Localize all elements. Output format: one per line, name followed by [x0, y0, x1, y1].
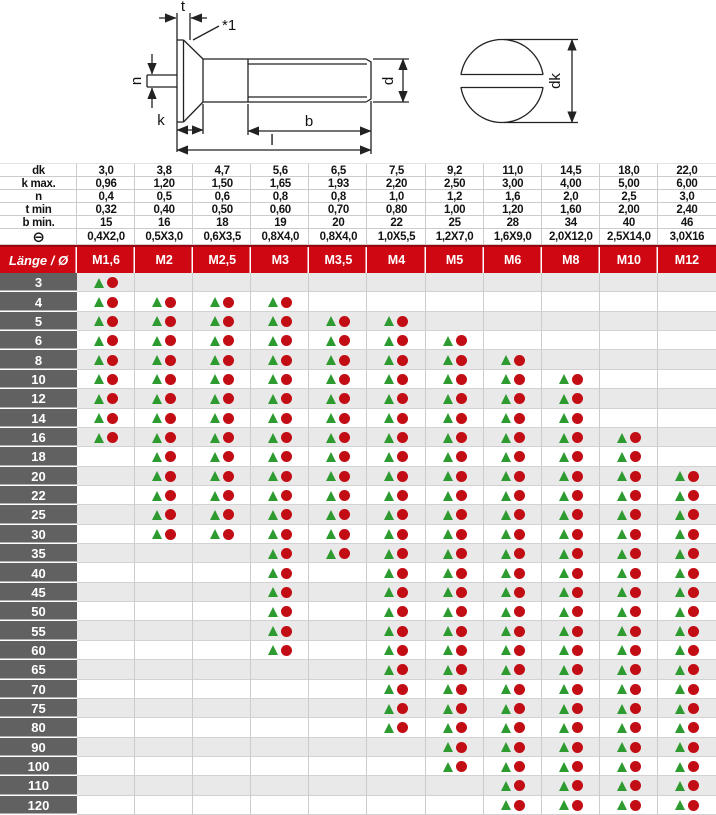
availability-cell — [77, 312, 135, 331]
spec-value: 40 — [600, 216, 658, 229]
availability-markers — [443, 393, 467, 404]
availability-markers — [152, 393, 176, 404]
availability-markers — [443, 684, 467, 695]
availability-markers — [559, 684, 583, 695]
availability-cell — [135, 292, 193, 311]
availability-cell — [77, 292, 135, 311]
triangle-icon — [210, 433, 220, 443]
availability-cell — [600, 312, 658, 331]
triangle-icon — [501, 568, 511, 578]
spec-value: 11,0 — [484, 164, 542, 177]
availability-cell — [251, 776, 309, 795]
triangle-icon — [384, 471, 394, 481]
spec-value: 3,0 — [658, 190, 716, 203]
availability-markers — [675, 761, 699, 772]
availability-cell — [426, 312, 484, 331]
table-row: 4 — [0, 292, 716, 311]
availability-markers — [210, 490, 234, 501]
circle-icon — [397, 664, 408, 675]
circle-icon — [165, 451, 176, 462]
availability-cell — [542, 641, 600, 660]
availability-markers — [559, 780, 583, 791]
availability-cell — [542, 718, 600, 737]
availability-cell — [658, 312, 716, 331]
triangle-icon — [152, 471, 162, 481]
availability-cell — [367, 409, 425, 428]
circle-icon — [572, 413, 583, 424]
triangle-icon — [210, 491, 220, 501]
triangle-icon — [559, 433, 569, 443]
availability-markers — [210, 509, 234, 520]
triangle-icon — [268, 471, 278, 481]
circle-icon — [688, 587, 699, 598]
availability-cell — [77, 525, 135, 544]
availability-markers — [443, 451, 467, 462]
circle-icon — [281, 529, 292, 540]
availability-cell — [426, 389, 484, 408]
circle-icon — [572, 490, 583, 501]
circle-icon — [514, 626, 525, 637]
circle-icon — [456, 432, 467, 443]
table-row: 22 — [0, 486, 716, 505]
triangle-icon — [152, 297, 162, 307]
length-label: 80 — [0, 718, 77, 737]
length-label: 4 — [0, 292, 77, 311]
availability-cell — [484, 273, 542, 292]
availability-cell — [251, 699, 309, 718]
availability-markers — [675, 800, 699, 811]
availability-cell — [77, 486, 135, 505]
availability-cell — [135, 389, 193, 408]
circle-icon — [572, 761, 583, 772]
circle-icon — [281, 548, 292, 559]
triangle-icon — [675, 781, 685, 791]
triangle-icon — [384, 626, 394, 636]
triangle-icon — [559, 394, 569, 404]
availability-markers — [326, 529, 350, 540]
circle-icon — [630, 432, 641, 443]
availability-markers — [501, 451, 525, 462]
availability-cell — [542, 699, 600, 718]
circle-icon — [514, 529, 525, 540]
availability-markers — [501, 626, 525, 637]
circle-icon — [630, 587, 641, 598]
circle-icon — [339, 451, 350, 462]
circle-icon — [572, 374, 583, 385]
availability-cell — [367, 273, 425, 292]
availability-markers — [501, 761, 525, 772]
circle-icon — [514, 568, 525, 579]
availability-markers — [268, 432, 292, 443]
spec-value: 5,00 — [600, 177, 658, 190]
availability-cell — [193, 583, 251, 602]
circle-icon — [281, 509, 292, 520]
triangle-icon — [559, 781, 569, 791]
circle-icon — [630, 722, 641, 733]
size-column-header: M8 — [542, 247, 600, 273]
availability-cell — [135, 428, 193, 447]
circle-icon — [456, 722, 467, 733]
availability-cell — [77, 273, 135, 292]
availability-cell — [367, 699, 425, 718]
availability-cell — [484, 757, 542, 776]
availability-markers — [617, 432, 641, 443]
triangle-icon — [326, 510, 336, 520]
availability-cell — [484, 776, 542, 795]
circle-icon — [572, 800, 583, 811]
triangle-icon — [443, 413, 453, 423]
triangle-icon — [326, 413, 336, 423]
availability-cell — [251, 409, 309, 428]
triangle-icon — [675, 568, 685, 578]
circle-icon — [572, 664, 583, 675]
spec-row-label: dk — [0, 164, 77, 177]
availability-markers — [443, 335, 467, 346]
triangle-icon — [443, 742, 453, 752]
availability-cell — [484, 389, 542, 408]
length-label: 18 — [0, 447, 77, 466]
availability-cell — [193, 331, 251, 350]
availability-cell — [367, 583, 425, 602]
availability-cell — [484, 486, 542, 505]
table-row: 110 — [0, 776, 716, 795]
availability-cell — [367, 602, 425, 621]
spec-row-label: k max. — [0, 177, 77, 190]
circle-icon — [572, 471, 583, 482]
spec-value: 20 — [309, 216, 367, 229]
availability-cell — [542, 409, 600, 428]
triangle-icon — [501, 471, 511, 481]
availability-cell — [542, 776, 600, 795]
triangle-icon — [384, 413, 394, 423]
circle-icon — [456, 742, 467, 753]
availability-markers — [675, 645, 699, 656]
availability-cell — [193, 641, 251, 660]
availability-cell — [600, 680, 658, 699]
circle-icon — [572, 780, 583, 791]
circle-icon — [688, 703, 699, 714]
table-row: 20 — [0, 467, 716, 486]
circle-icon — [688, 471, 699, 482]
availability-cell — [600, 350, 658, 369]
triangle-icon — [559, 568, 569, 578]
circle-icon — [397, 393, 408, 404]
triangle-icon — [384, 510, 394, 520]
availability-markers — [443, 761, 467, 772]
availability-markers — [559, 548, 583, 559]
availability-markers — [384, 587, 408, 598]
availability-cell — [542, 505, 600, 524]
circle-icon — [397, 413, 408, 424]
availability-markers — [94, 432, 118, 443]
dim-label-k: k — [157, 112, 165, 129]
availability-markers — [210, 374, 234, 385]
triangle-icon — [210, 374, 220, 384]
availability-markers — [94, 297, 118, 308]
circle-icon — [397, 703, 408, 714]
availability-cell — [77, 776, 135, 795]
availability-markers — [94, 393, 118, 404]
circle-icon — [630, 664, 641, 675]
circle-icon — [281, 626, 292, 637]
availability-markers — [617, 568, 641, 579]
triangle-icon — [268, 452, 278, 462]
availability-markers — [210, 297, 234, 308]
availability-markers — [443, 548, 467, 559]
availability-markers — [559, 761, 583, 772]
triangle-icon — [617, 510, 627, 520]
availability-cell — [484, 602, 542, 621]
availability-cell — [600, 331, 658, 350]
availability-markers — [268, 606, 292, 617]
triangle-icon — [384, 684, 394, 694]
availability-markers — [443, 529, 467, 540]
availability-markers — [501, 722, 525, 733]
size-column-header: M12 — [658, 247, 716, 273]
availability-cell — [600, 563, 658, 582]
availability-cell — [251, 505, 309, 524]
availability-cell — [193, 292, 251, 311]
circle-icon — [397, 645, 408, 656]
availability-markers — [268, 548, 292, 559]
availability-cell — [600, 641, 658, 660]
availability-markers — [384, 645, 408, 656]
triangle-icon — [268, 491, 278, 501]
circle-icon — [630, 490, 641, 501]
dim-label-t: t — [181, 0, 186, 15]
circle-icon — [688, 529, 699, 540]
triangle-icon — [384, 607, 394, 617]
circle-icon — [397, 568, 408, 579]
triangle-icon — [501, 645, 511, 655]
availability-markers — [94, 316, 118, 327]
availability-markers — [559, 413, 583, 424]
triangle-icon — [210, 452, 220, 462]
availability-cell — [484, 660, 542, 679]
triangle-icon — [384, 355, 394, 365]
size-column-header: M3 — [251, 247, 309, 273]
availability-cell — [135, 350, 193, 369]
triangle-icon — [326, 452, 336, 462]
availability-cell — [542, 738, 600, 757]
availability-cell — [251, 467, 309, 486]
availability-cell — [367, 718, 425, 737]
availability-cell — [309, 602, 367, 621]
circle-icon — [339, 374, 350, 385]
spec-value: 22,0 — [658, 164, 716, 177]
availability-cell — [658, 796, 716, 815]
availability-cell — [135, 757, 193, 776]
circle-icon — [572, 703, 583, 714]
availability-markers — [501, 471, 525, 482]
circle-icon — [688, 722, 699, 733]
availability-cell — [193, 467, 251, 486]
availability-cell — [426, 370, 484, 389]
circle-icon — [514, 761, 525, 772]
availability-cell — [251, 273, 309, 292]
spec-value: 1,60 — [542, 203, 600, 216]
circle-icon — [397, 626, 408, 637]
availability-cell — [658, 350, 716, 369]
triangle-icon — [443, 529, 453, 539]
availability-markers — [384, 568, 408, 579]
availability-cell — [251, 660, 309, 679]
availability-cell — [251, 621, 309, 640]
availability-cell — [309, 273, 367, 292]
triangle-icon — [210, 297, 220, 307]
triangle-icon — [559, 704, 569, 714]
availability-cell — [484, 312, 542, 331]
triangle-icon — [617, 781, 627, 791]
availability-markers — [617, 761, 641, 772]
triangle-icon — [617, 742, 627, 752]
triangle-icon — [559, 607, 569, 617]
availability-cell — [251, 738, 309, 757]
length-label: 65 — [0, 660, 77, 679]
length-label: 100 — [0, 757, 77, 776]
triangle-icon — [501, 723, 511, 733]
availability-cell — [426, 583, 484, 602]
circle-icon — [630, 451, 641, 462]
circle-icon — [572, 626, 583, 637]
spec-value: 1,0 — [367, 190, 425, 203]
availability-markers — [268, 451, 292, 462]
spec-value: 16 — [135, 216, 193, 229]
availability-markers — [617, 587, 641, 598]
triangle-icon — [559, 742, 569, 752]
triangle-icon — [617, 433, 627, 443]
availability-cell — [600, 583, 658, 602]
availability-cell — [367, 738, 425, 757]
table-row: 45 — [0, 583, 716, 602]
circle-icon — [223, 413, 234, 424]
circle-icon — [339, 355, 350, 366]
triangle-icon — [675, 491, 685, 501]
availability-markers — [559, 626, 583, 637]
triangle-icon — [94, 433, 104, 443]
availability-markers — [501, 393, 525, 404]
availability-cell — [309, 447, 367, 466]
availability-markers — [384, 606, 408, 617]
circle-icon — [107, 316, 118, 327]
availability-cell — [600, 525, 658, 544]
availability-cell — [193, 718, 251, 737]
availability-cell — [542, 757, 600, 776]
availability-cell — [135, 370, 193, 389]
spec-value: 18,0 — [600, 164, 658, 177]
availability-cell — [658, 331, 716, 350]
availability-cell — [251, 525, 309, 544]
circle-icon — [688, 742, 699, 753]
triangle-icon — [559, 491, 569, 501]
spec-row: t min0,320,400,500,600,700,801,001,201,6… — [0, 203, 716, 216]
availability-cell — [658, 389, 716, 408]
availability-cell — [600, 602, 658, 621]
triangle-icon — [152, 529, 162, 539]
table-row: 25 — [0, 505, 716, 524]
availability-cell — [484, 409, 542, 428]
availability-markers — [384, 413, 408, 424]
availability-markers — [501, 684, 525, 695]
table-row: 5 — [0, 312, 716, 331]
spec-value: 18 — [193, 216, 251, 229]
availability-markers — [384, 451, 408, 462]
triangle-icon — [443, 645, 453, 655]
triangle-icon — [617, 529, 627, 539]
availability-markers — [326, 432, 350, 443]
availability-cell — [193, 757, 251, 776]
availability-cell — [251, 447, 309, 466]
circle-icon — [397, 490, 408, 501]
triangle-icon — [268, 394, 278, 404]
availability-markers — [501, 490, 525, 501]
availability-cell — [251, 292, 309, 311]
triangle-icon — [675, 607, 685, 617]
availability-cell — [309, 699, 367, 718]
circle-icon — [281, 355, 292, 366]
availability-markers — [152, 471, 176, 482]
triangle-icon — [384, 645, 394, 655]
triangle-icon — [675, 723, 685, 733]
availability-cell — [193, 505, 251, 524]
triangle-icon — [559, 665, 569, 675]
circle-icon — [630, 645, 641, 656]
availability-cell — [135, 467, 193, 486]
spec-value: 1,65 — [251, 177, 309, 190]
availability-markers — [675, 587, 699, 598]
circle-icon — [572, 684, 583, 695]
triangle-icon — [384, 587, 394, 597]
availability-markers — [559, 529, 583, 540]
circle-icon — [456, 413, 467, 424]
circle-icon — [572, 742, 583, 753]
availability-markers — [501, 800, 525, 811]
triangle-icon — [210, 316, 220, 326]
triangle-icon — [675, 762, 685, 772]
availability-cell — [77, 602, 135, 621]
availability-cell — [251, 796, 309, 815]
availability-cell — [658, 273, 716, 292]
spec-row: ⊖0,4X2,00,5X3,00,6X3,50,8X4,00,8X4,01,0X… — [0, 229, 716, 245]
availability-markers — [152, 355, 176, 366]
availability-markers — [210, 432, 234, 443]
spec-value: 0,6 — [193, 190, 251, 203]
availability-cell — [309, 467, 367, 486]
availability-cell — [77, 467, 135, 486]
availability-cell — [484, 583, 542, 602]
availability-markers — [443, 645, 467, 656]
availability-cell — [251, 583, 309, 602]
spec-value: 2,0 — [542, 190, 600, 203]
size-column-header: M1,6 — [77, 247, 135, 273]
triangle-icon — [326, 471, 336, 481]
triangle-icon — [617, 568, 627, 578]
availability-markers — [617, 684, 641, 695]
availability-cell — [193, 660, 251, 679]
circle-icon — [107, 374, 118, 385]
availability-cell — [658, 660, 716, 679]
availability-cell — [542, 467, 600, 486]
triangle-icon — [501, 704, 511, 714]
availability-markers — [268, 355, 292, 366]
availability-markers — [617, 606, 641, 617]
triangle-icon — [268, 413, 278, 423]
triangle-icon — [617, 549, 627, 559]
availability-cell — [193, 389, 251, 408]
spec-row-label: t min — [0, 203, 77, 216]
triangle-icon — [617, 800, 627, 810]
availability-cell — [135, 583, 193, 602]
